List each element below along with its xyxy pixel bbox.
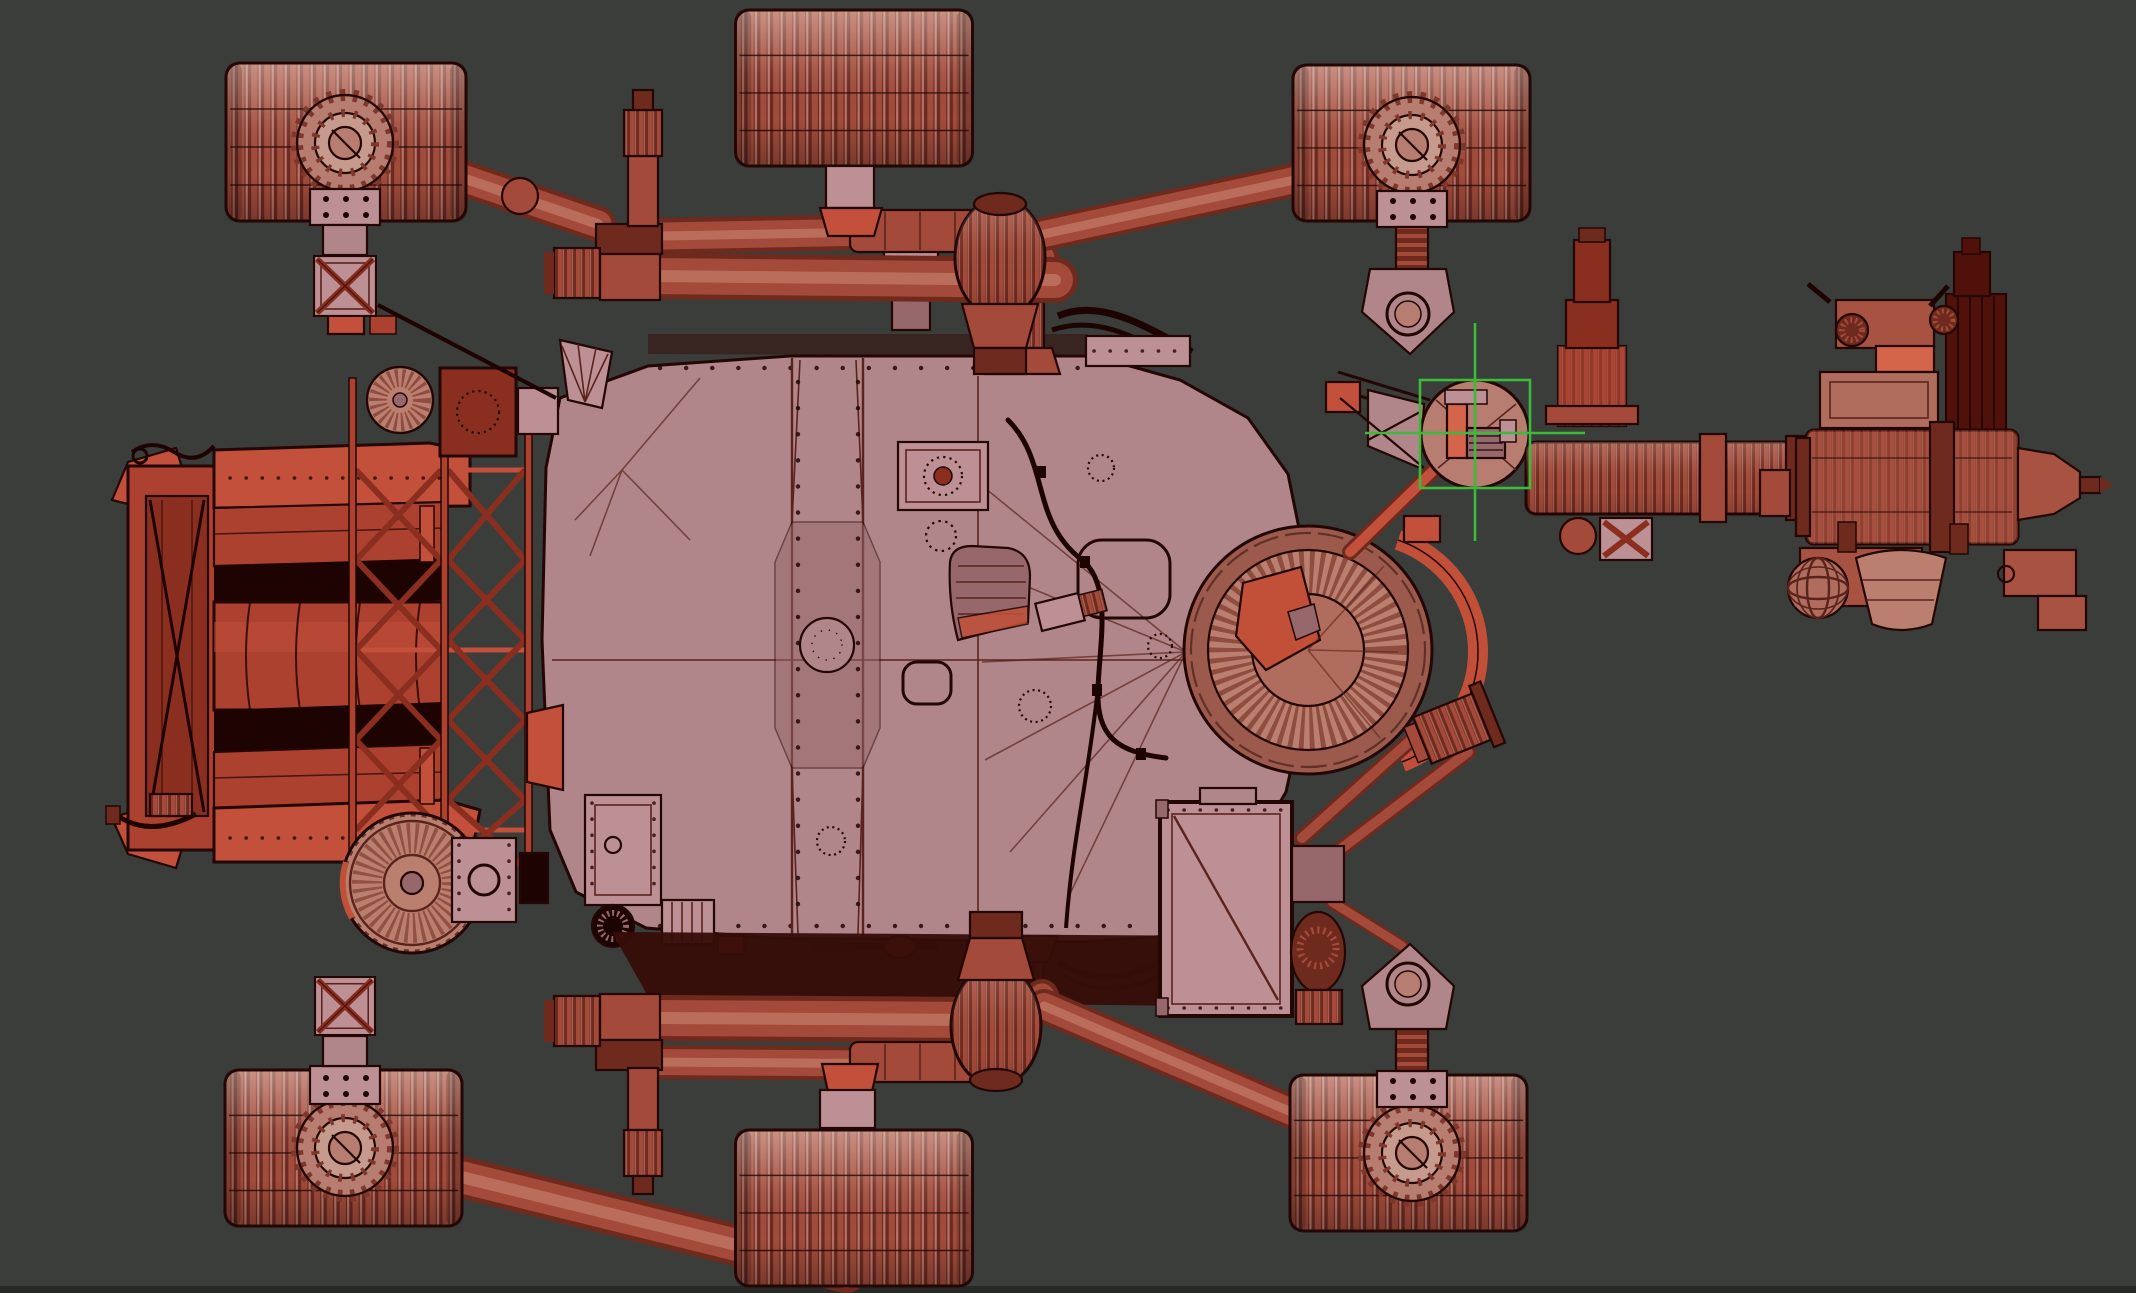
deck-plate-rosette [898,442,988,510]
deck-rimfax-housing [950,546,1030,640]
deck-bottom-left-panel [585,795,661,905]
side-access-panel [1156,788,1292,1016]
cooling-fan-top [367,367,433,433]
deck-dark-plate [440,368,516,456]
turret-dome [1856,550,1946,630]
deck-cone-instrument [560,340,612,408]
deck-edge-bracket [527,705,563,790]
3d-viewport[interactable] [0,0,2136,1293]
deck-gear-plate [452,838,516,922]
viewport-bottom-edge [0,1286,2136,1293]
rtg-power-block [106,443,480,868]
deck-grid-box [520,853,548,903]
wheel-mount-bottom-middle [820,1064,878,1128]
steering-hub-bottom-front [1362,944,1460,1201]
wheel-top-middle [735,10,972,166]
steering-hub-top-front [1362,97,1460,354]
rtg-top-beam [214,443,470,508]
turret-sphere [1788,558,1848,618]
belly-panel [612,932,1232,1006]
wheel-mount-top-middle [820,166,882,236]
wheel-bottom-middle [735,1130,972,1286]
rover-model [0,0,2136,1293]
